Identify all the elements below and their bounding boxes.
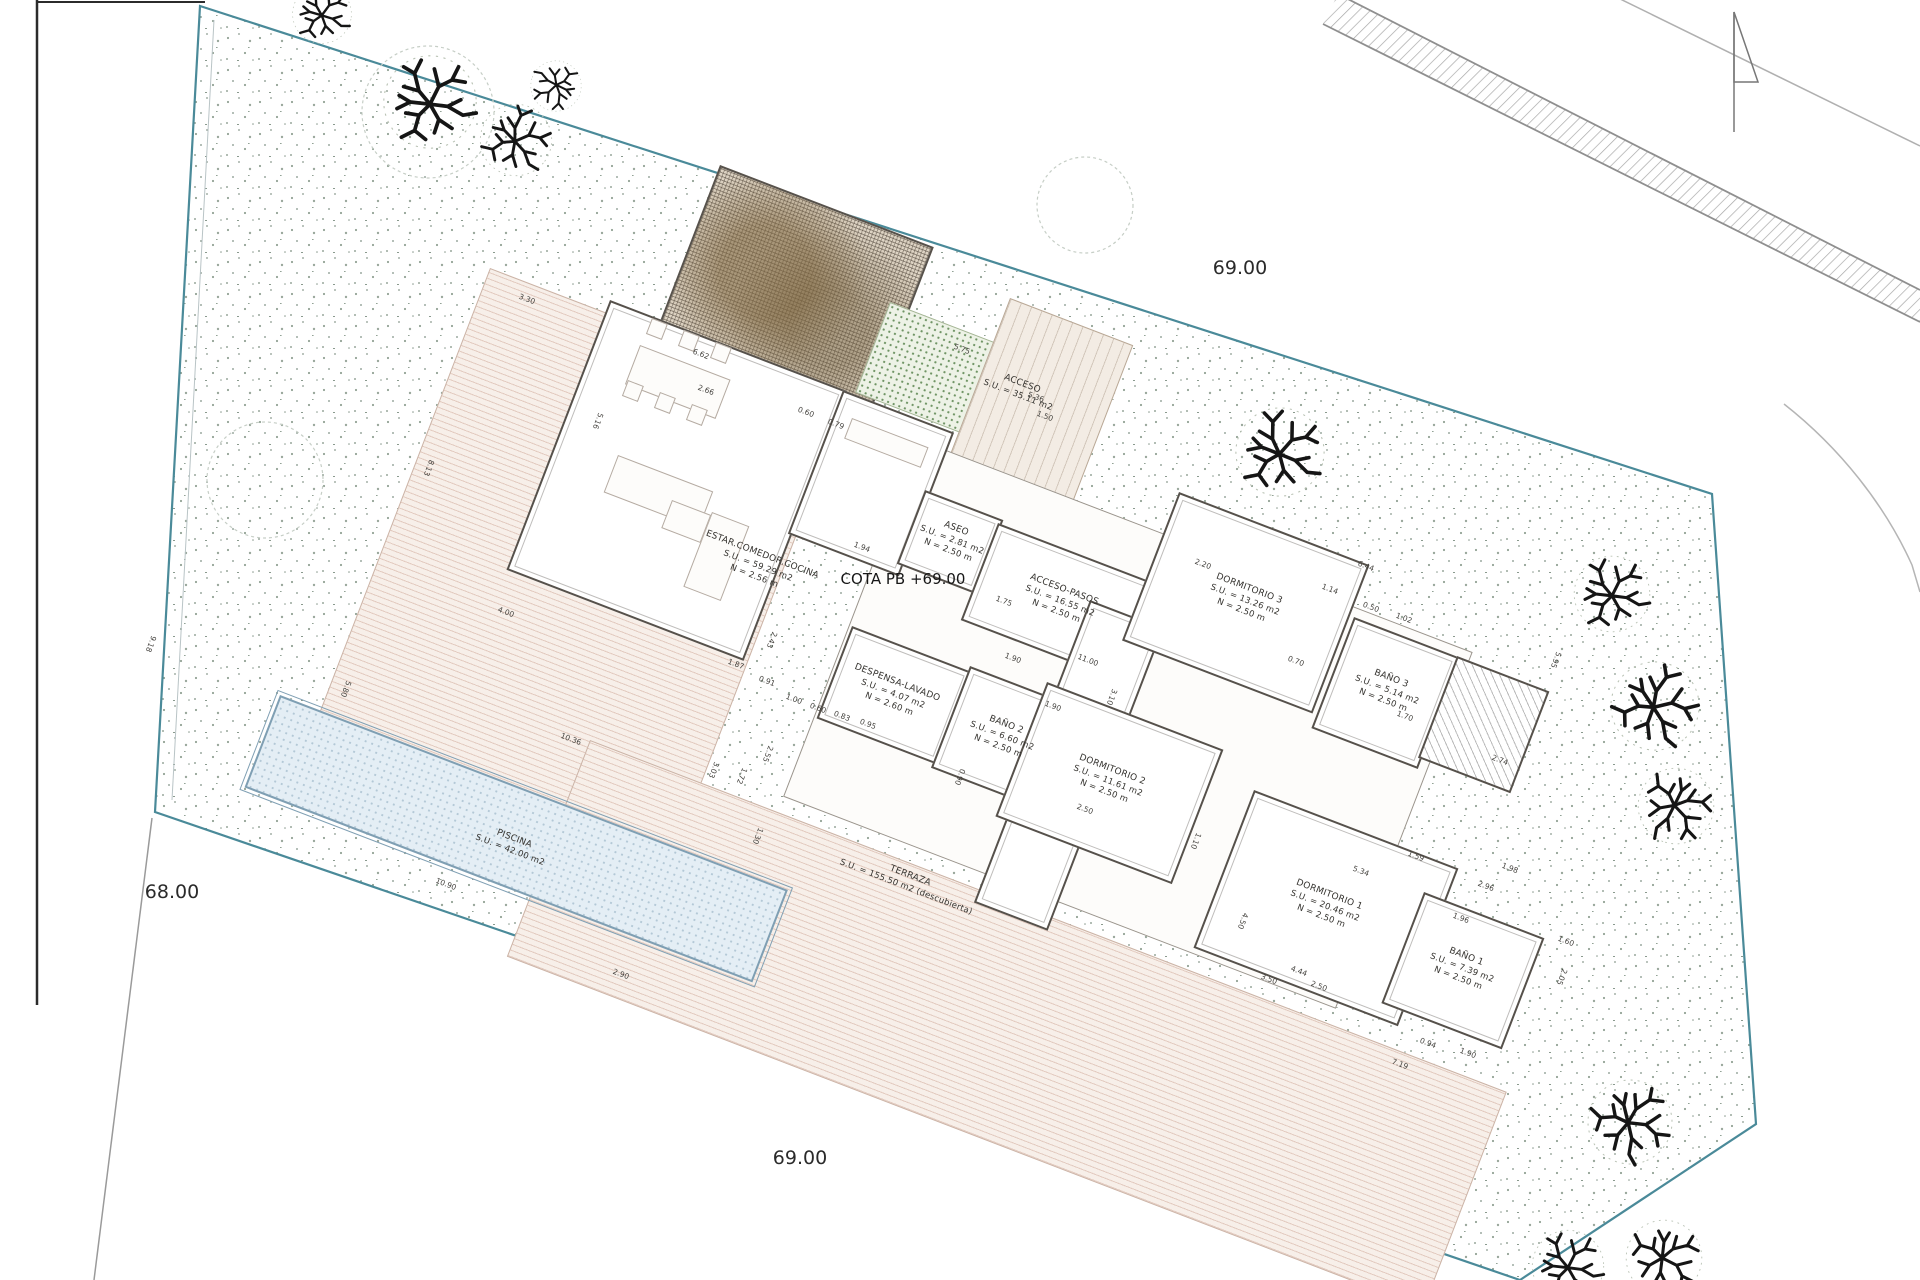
north-arrow-icon bbox=[1734, 12, 1758, 132]
tree-icon bbox=[1626, 1220, 1702, 1280]
site-plan-canvas: 69.00 68.00 69.00 COTA PB +69.00 ESTAR.C… bbox=[0, 0, 1920, 1280]
